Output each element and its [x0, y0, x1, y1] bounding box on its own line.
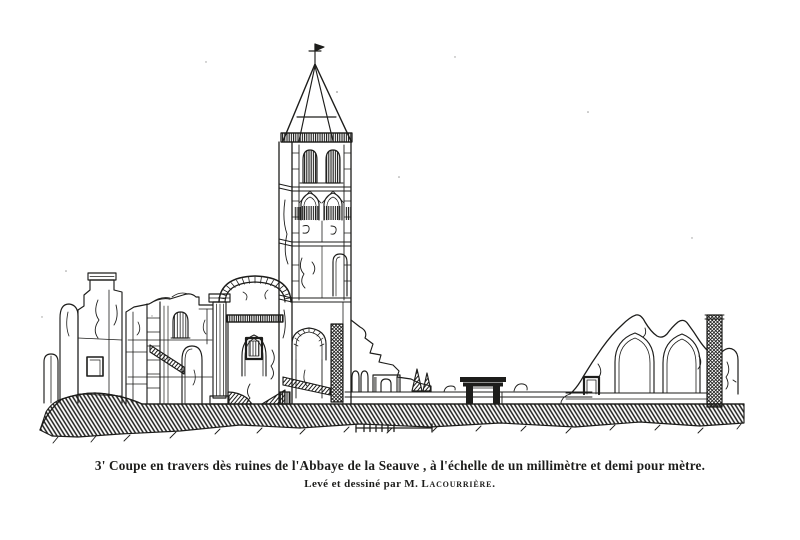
figure-caption: 3' Coupe en travers dès ruines de l'Abba… — [0, 458, 800, 490]
caption-credit: Levé et dessiné par M. Lacourrière. — [0, 478, 800, 490]
masonry-pillar — [705, 315, 724, 407]
boundary-wall — [432, 384, 592, 404]
caption-credit-prefix: Levé et dessiné par M. — [304, 478, 418, 490]
spire — [281, 44, 352, 142]
dust-specks — [41, 56, 692, 317]
tower-base — [280, 302, 343, 404]
ruined-arcade-fragment — [345, 320, 432, 397]
belfry-windows — [300, 150, 343, 183]
gothic-arcade — [294, 191, 351, 220]
scanned-page: 3' Coupe en travers dès ruines de l'Abba… — [0, 0, 800, 540]
engraving-figure: 3' Coupe en travers dès ruines de l'Abba… — [0, 0, 800, 490]
caption-credit-name: Lacourrière. — [421, 478, 495, 490]
left-ruins — [44, 273, 122, 403]
ground-line — [40, 393, 744, 443]
caption-title: 3' Coupe en travers dès ruines de l'Abba… — [0, 458, 800, 474]
nave-wall — [126, 293, 213, 404]
abbey-section-drawing — [0, 0, 800, 452]
cross-finial — [315, 44, 324, 51]
bell-tower — [279, 44, 352, 404]
portal — [460, 377, 506, 405]
